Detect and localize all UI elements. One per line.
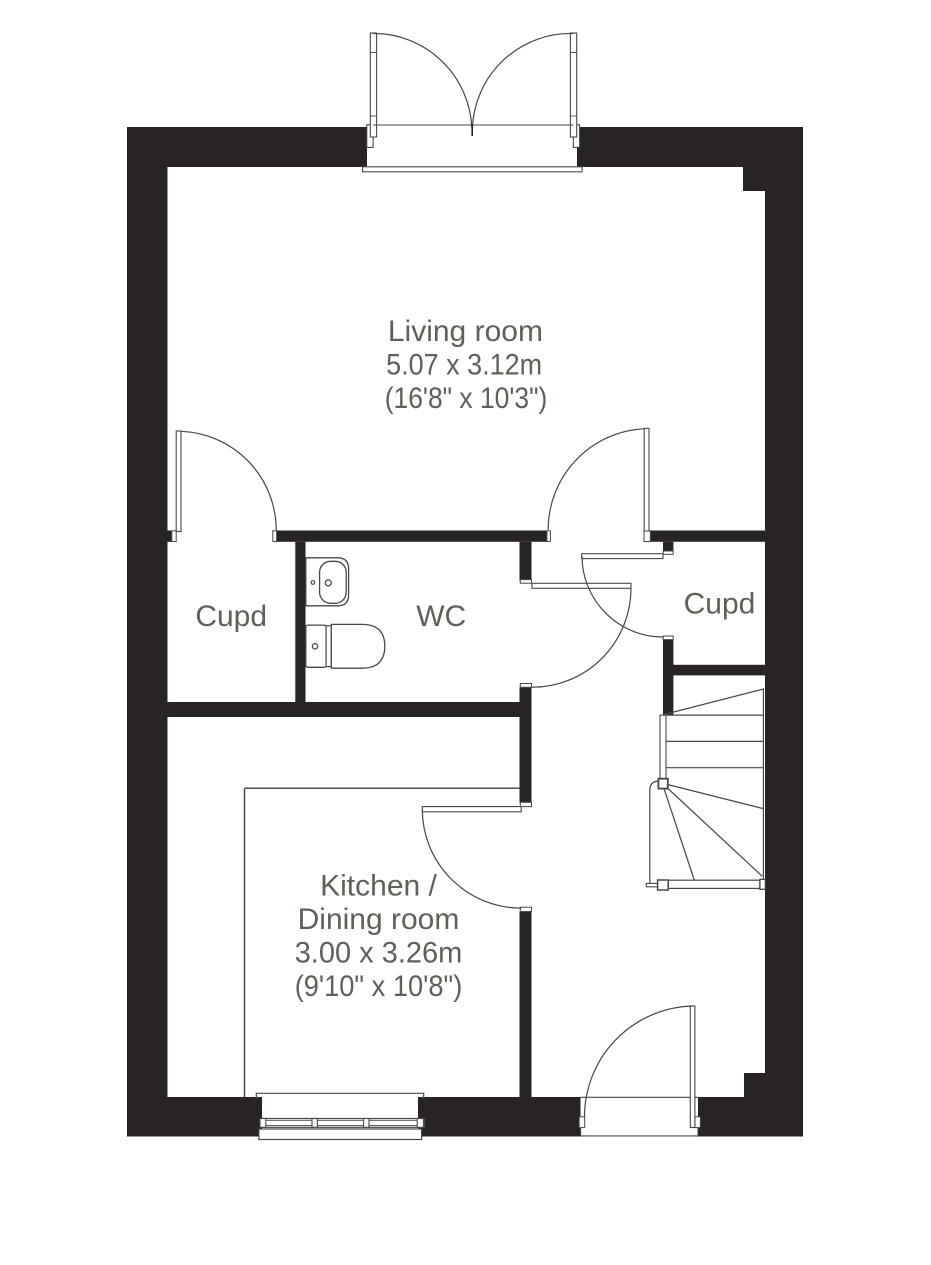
svg-text:Living room: Living room (388, 315, 543, 348)
svg-text:Cupd: Cupd (195, 600, 267, 633)
svg-text:Dining room: Dining room (298, 903, 460, 936)
svg-text:Cupd: Cupd (684, 587, 756, 620)
svg-text:Kitchen /: Kitchen / (320, 870, 437, 903)
svg-text:5.07 x 3.12m: 5.07 x 3.12m (386, 349, 542, 382)
svg-text:(16'8" x 10'3"): (16'8" x 10'3") (385, 382, 548, 415)
svg-text:3.00 x 3.26m: 3.00 x 3.26m (295, 937, 463, 970)
svg-text:WC: WC (416, 600, 466, 633)
svg-text:(9'10" x 10'8"): (9'10" x 10'8") (295, 970, 463, 1003)
